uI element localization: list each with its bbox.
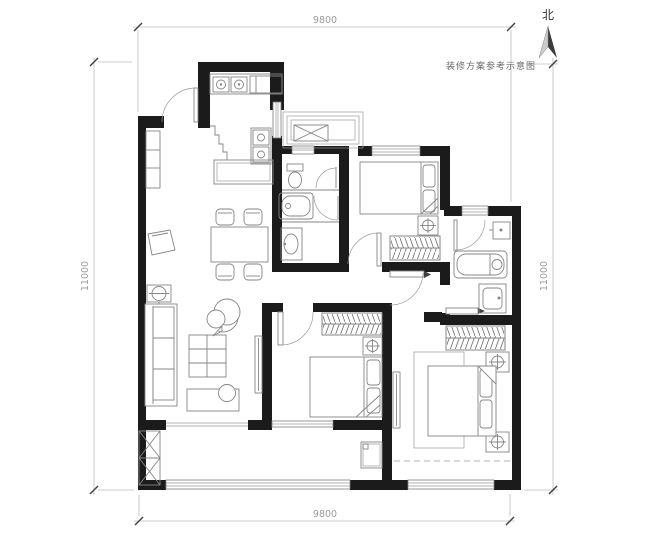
caption: 装修方案参考示意图 <box>446 60 536 72</box>
dim-left-value: 11000 <box>80 261 91 291</box>
nightstand1 <box>418 216 438 235</box>
living-dining <box>145 209 268 411</box>
bed3 <box>428 366 496 436</box>
rug <box>189 335 226 377</box>
armchair <box>148 230 175 255</box>
dim-right-value: 11000 <box>539 261 550 291</box>
equipment-platform <box>283 112 363 148</box>
dim-top-value: 9800 <box>313 15 337 26</box>
living-balcony-opening <box>166 423 248 426</box>
wardrobe3 <box>446 326 505 350</box>
bedroom1-window <box>372 146 420 155</box>
bathtub2 <box>454 251 507 278</box>
wardrobe2 <box>322 313 382 335</box>
wardrobe1 <box>390 236 440 260</box>
bedroom2-balcony-sill <box>272 421 333 427</box>
master-bedroom-window <box>408 480 494 489</box>
north-indicator: 北 <box>539 8 557 58</box>
entry-door <box>162 88 198 122</box>
entry <box>146 131 160 188</box>
coffee-table <box>187 385 239 412</box>
north-arrow-dark <box>548 26 557 58</box>
vanity2 <box>479 284 506 313</box>
bed1 <box>360 162 438 214</box>
small-basin <box>489 222 510 239</box>
bathroom2-window <box>462 206 488 215</box>
tv-board-living <box>255 336 262 393</box>
balcony-window <box>166 480 350 489</box>
corridor-door <box>390 271 431 305</box>
toilet <box>287 164 303 188</box>
bedroom2 <box>310 313 382 417</box>
washing-machine <box>361 442 382 468</box>
dining-set <box>211 209 268 280</box>
bathroom1-shower-door <box>316 167 336 188</box>
north-label: 北 <box>542 8 554 22</box>
dimension-right: 11000 <box>524 58 558 495</box>
kitchen-side-window <box>273 102 281 138</box>
ac-unit <box>294 125 328 141</box>
stove <box>213 77 247 92</box>
tv-board-master <box>393 372 400 428</box>
dim-bottom-value: 9800 <box>313 509 337 520</box>
washbasin <box>281 228 302 260</box>
shoe-cabinet <box>146 131 160 188</box>
nightstand2 <box>363 337 382 355</box>
kitchen-step-edge <box>210 126 227 160</box>
bathroom2-inner-door <box>454 220 485 251</box>
bathroom1-window <box>292 146 314 154</box>
bedroom2-door <box>278 312 313 345</box>
bedroom1-door <box>348 233 381 266</box>
north-arrow-light <box>539 26 548 58</box>
bathroom1 <box>279 164 339 260</box>
master-bedroom <box>393 326 511 461</box>
kitchen-sink <box>251 128 271 164</box>
dimension-left: 11000 <box>80 57 134 495</box>
bathroom2 <box>454 222 510 313</box>
bedroom1 <box>360 162 440 260</box>
balcony <box>139 431 382 485</box>
dimension-bottom: 9800 <box>134 494 515 525</box>
bathroom1-tub-door <box>314 196 338 220</box>
bed2 <box>310 357 382 417</box>
bathtub <box>279 193 313 219</box>
dimension-top: 9800 <box>133 15 516 202</box>
floor-plan-drawing: 9800 9800 11000 11000 北 装修方案参考示意图 <box>0 0 650 536</box>
floor-plan-page: 9800 9800 11000 11000 北 装修方案参考示意图 <box>0 0 650 536</box>
plant <box>207 299 240 336</box>
sofa <box>145 304 177 406</box>
